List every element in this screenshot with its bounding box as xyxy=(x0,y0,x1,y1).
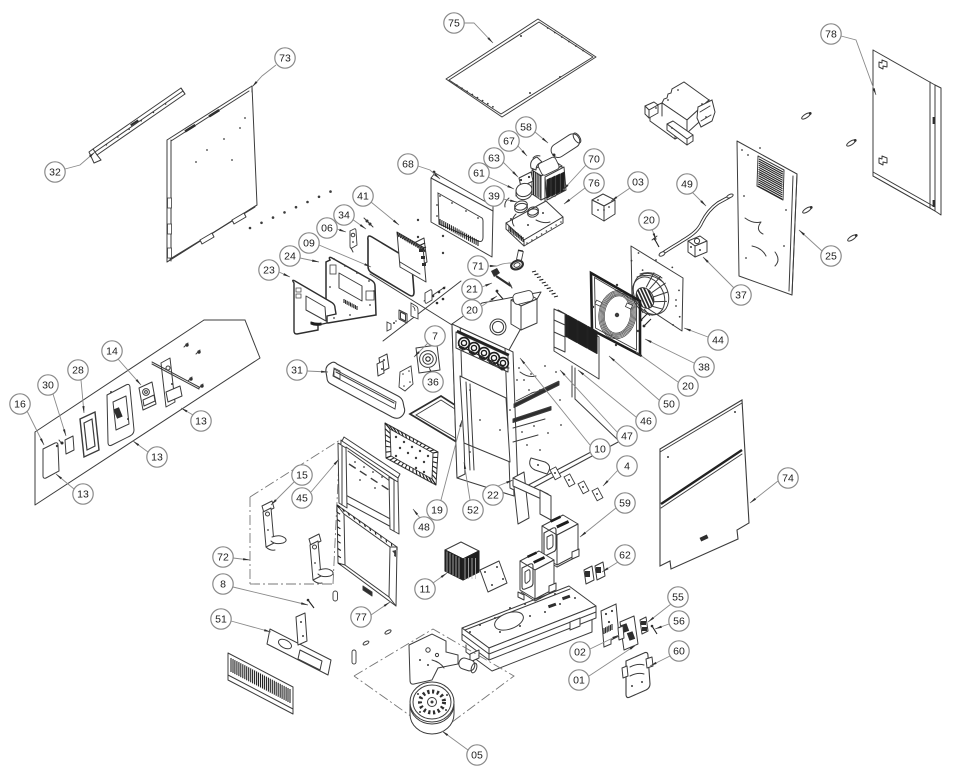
svg-text:13: 13 xyxy=(151,452,163,464)
svg-text:55: 55 xyxy=(672,592,684,604)
svg-text:36: 36 xyxy=(427,377,439,389)
svg-text:20: 20 xyxy=(643,215,655,227)
svg-text:70: 70 xyxy=(588,154,600,166)
svg-text:51: 51 xyxy=(215,614,227,626)
svg-text:62: 62 xyxy=(619,550,631,562)
svg-text:8: 8 xyxy=(220,579,226,591)
svg-text:28: 28 xyxy=(72,365,84,377)
svg-text:60: 60 xyxy=(673,646,685,658)
svg-text:67: 67 xyxy=(503,136,515,148)
svg-text:13: 13 xyxy=(77,489,89,501)
svg-text:75: 75 xyxy=(448,18,460,30)
svg-text:38: 38 xyxy=(698,362,710,374)
svg-text:46: 46 xyxy=(640,416,652,428)
svg-text:14: 14 xyxy=(106,346,118,358)
svg-text:34: 34 xyxy=(338,210,350,222)
svg-text:73: 73 xyxy=(279,53,291,65)
svg-text:63: 63 xyxy=(488,153,500,165)
svg-text:22: 22 xyxy=(487,490,499,502)
svg-text:74: 74 xyxy=(782,473,794,485)
svg-text:21: 21 xyxy=(466,284,478,296)
svg-text:24: 24 xyxy=(284,251,296,263)
svg-text:23: 23 xyxy=(263,265,275,277)
svg-text:16: 16 xyxy=(14,399,26,411)
svg-text:71: 71 xyxy=(472,261,484,273)
svg-text:31: 31 xyxy=(291,365,303,377)
svg-text:15: 15 xyxy=(296,470,308,482)
svg-text:59: 59 xyxy=(619,498,631,510)
svg-text:05: 05 xyxy=(471,750,483,762)
svg-text:39: 39 xyxy=(488,191,500,203)
svg-text:76: 76 xyxy=(588,178,600,190)
svg-text:11: 11 xyxy=(420,584,431,596)
svg-text:44: 44 xyxy=(712,335,724,347)
svg-text:20: 20 xyxy=(466,305,478,317)
svg-text:10: 10 xyxy=(594,444,606,456)
svg-text:45: 45 xyxy=(296,493,308,505)
svg-text:02: 02 xyxy=(574,647,586,659)
svg-text:50: 50 xyxy=(663,399,675,411)
svg-text:13: 13 xyxy=(195,416,207,428)
svg-text:61: 61 xyxy=(473,168,485,180)
svg-text:25: 25 xyxy=(825,251,837,263)
svg-text:06: 06 xyxy=(321,223,333,235)
svg-text:19: 19 xyxy=(431,505,443,517)
svg-text:01: 01 xyxy=(573,675,585,687)
svg-text:41: 41 xyxy=(357,191,369,203)
svg-text:78: 78 xyxy=(825,29,837,41)
svg-text:72: 72 xyxy=(217,552,229,564)
svg-text:30: 30 xyxy=(42,380,54,392)
svg-text:58: 58 xyxy=(520,122,532,134)
svg-text:49: 49 xyxy=(681,179,693,191)
svg-text:4: 4 xyxy=(624,461,630,473)
svg-text:03: 03 xyxy=(632,177,644,189)
svg-text:48: 48 xyxy=(418,522,430,534)
svg-text:09: 09 xyxy=(303,238,315,250)
svg-text:37: 37 xyxy=(735,290,747,302)
svg-text:32: 32 xyxy=(49,167,61,179)
svg-text:52: 52 xyxy=(467,505,479,517)
svg-text:47: 47 xyxy=(621,431,633,443)
svg-text:56: 56 xyxy=(673,616,685,628)
svg-text:77: 77 xyxy=(355,612,367,624)
svg-text:68: 68 xyxy=(402,159,414,171)
svg-text:7: 7 xyxy=(432,331,438,343)
svg-text:20: 20 xyxy=(682,381,694,393)
